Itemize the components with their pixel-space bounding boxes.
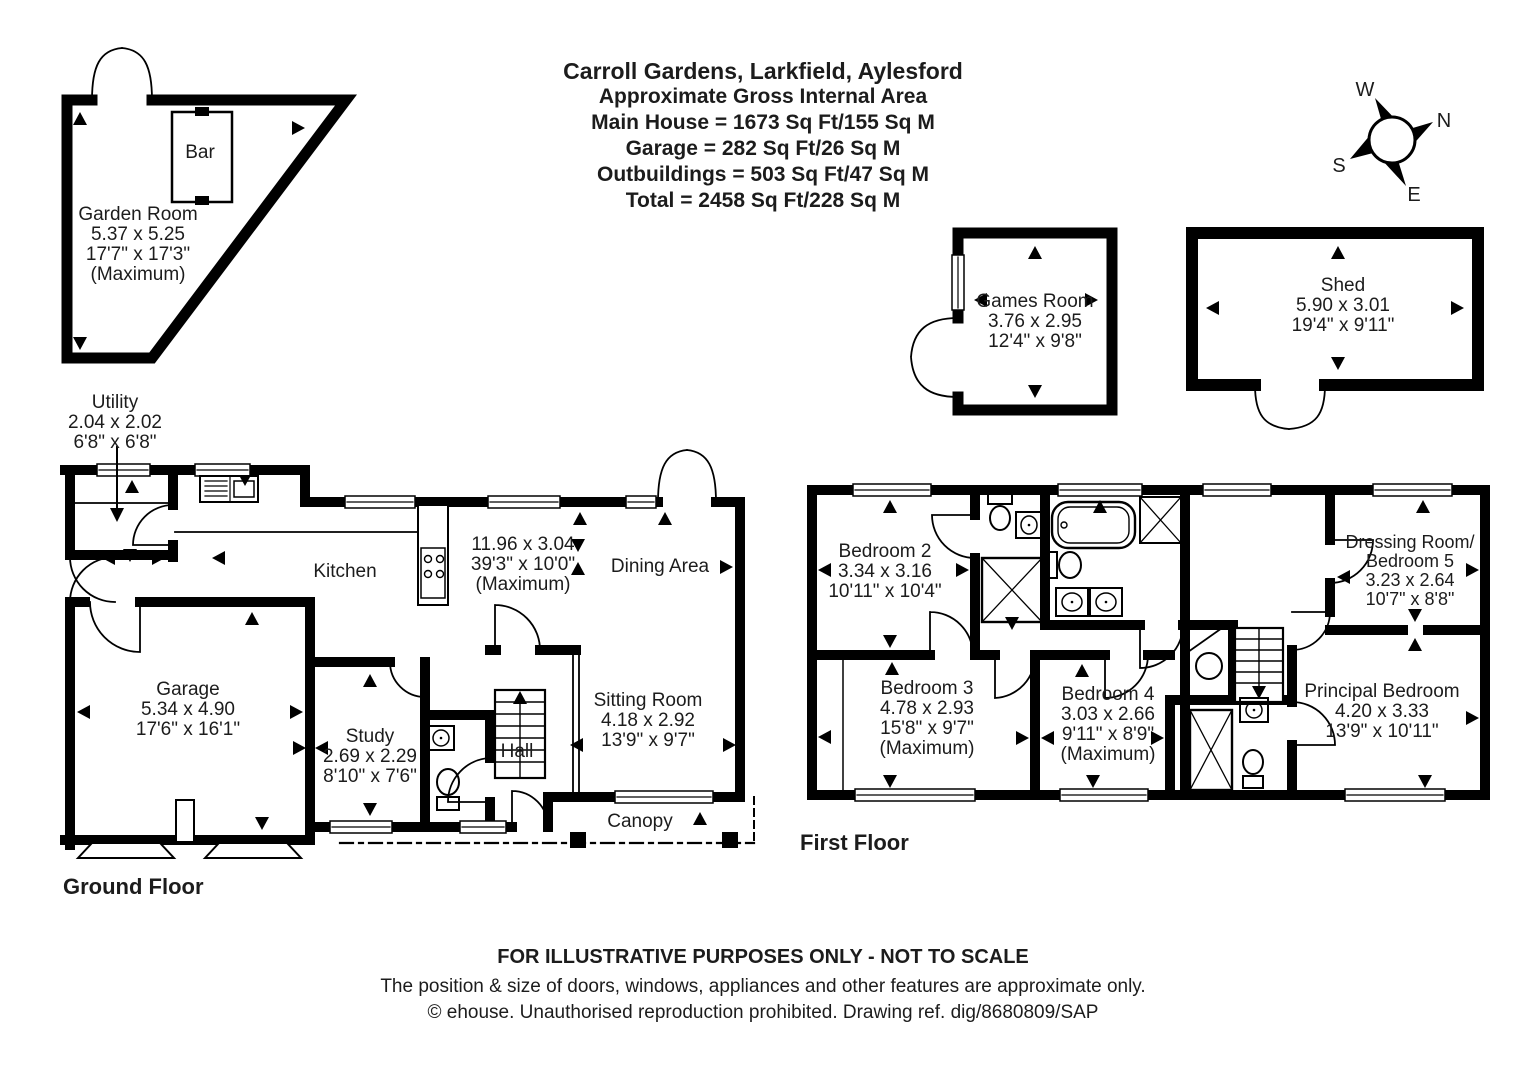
room-dim-m: 3.03 x 2.66 [1061, 705, 1156, 725]
room-dim-ft: 13'9" x 10'11" [1304, 722, 1459, 742]
ensuite1-fixtures [982, 494, 1042, 622]
garage-doors [78, 800, 301, 858]
room-note: (Maximum) [471, 575, 575, 595]
room-dim-ft: 10'11" x 10'4" [828, 582, 941, 602]
area-subtitle: Approximate Gross Internal Area [563, 84, 963, 110]
footer-copyright: © ehouse. Unauthorised reproduction proh… [428, 1002, 1099, 1024]
room-dim-m: 5.37 x 5.25 [78, 225, 197, 245]
dressing-room-label: Dressing Room/ Bedroom 5 3.23 x 2.64 10'… [1345, 533, 1474, 609]
room-dim-ft: 13'9" x 9'7" [594, 731, 703, 751]
address-title: Carroll Gardens, Larkfield, Aylesford [563, 58, 963, 84]
room-name: Bedroom 4 [1061, 685, 1156, 705]
room-dim-ft: 15'8" x 9'7" [880, 719, 975, 739]
room-dim-ft: 9'11" x 8'9" [1061, 725, 1156, 745]
garden-room-plan [67, 48, 346, 358]
room-dim-ft: 10'7" x 8'8" [1345, 590, 1474, 609]
room-name: Games Room [976, 292, 1093, 312]
room-note: (Maximum) [78, 265, 197, 285]
room-name-line1: Dressing Room/ [1345, 533, 1474, 552]
room-name: Sitting Room [594, 691, 703, 711]
window [952, 255, 964, 310]
total-area: Total = 2458 Sq Ft/228 Sq M [563, 188, 963, 214]
room-name: Kitchen [313, 562, 376, 582]
utility-pointer-arrow [110, 447, 124, 522]
hob-icon [418, 505, 448, 605]
floorplan-page: W N S E [0, 0, 1528, 1080]
compass-south: S [1332, 155, 1345, 177]
ground-floor-title: Ground Floor [63, 874, 204, 900]
principal-bedroom-label: Principal Bedroom 4.20 x 3.33 13'9" x 10… [1304, 682, 1459, 742]
first-floor-title: First Floor [800, 830, 909, 856]
room-name: Canopy [607, 812, 673, 832]
room-name: Hall [501, 742, 534, 762]
room-name: Dining Area [611, 557, 709, 577]
room-name: Bar [185, 143, 215, 163]
bedroom4-label: Bedroom 4 3.03 x 2.66 9'11" x 8'9" (Maxi… [1061, 685, 1156, 765]
title-block: Carroll Gardens, Larkfield, Aylesford Ap… [563, 58, 963, 214]
ground-floor-plan [65, 447, 754, 858]
room-dim-m: 3.34 x 3.16 [828, 562, 941, 582]
room-dim-m: 5.34 x 4.90 [136, 700, 240, 720]
room-dim-ft: 12'4" x 9'8" [976, 332, 1093, 352]
room-name-line2: Bedroom 5 [1345, 552, 1474, 571]
room-dim-m: 4.20 x 3.33 [1304, 702, 1459, 722]
study-label: Study 2.69 x 2.29 8'10" x 7'6" [323, 727, 417, 787]
room-name: Principal Bedroom [1304, 682, 1459, 702]
room-dim-m: 5.90 x 3.01 [1292, 296, 1395, 316]
cupboard-tank-icon [1196, 653, 1222, 679]
bathroom-fixtures [1048, 497, 1181, 616]
bedroom3-label: Bedroom 3 4.78 x 2.93 15'8" x 9'7" (Maxi… [880, 679, 975, 759]
staircase [495, 690, 545, 778]
room-name: Garden Room [78, 205, 197, 225]
room-note: (Maximum) [1061, 745, 1156, 765]
room-dim-ft: 8'10" x 7'6" [323, 767, 417, 787]
sitting-room-label: Sitting Room 4.18 x 2.92 13'9" x 9'7" [594, 691, 703, 751]
hall-label: Hall [501, 742, 534, 762]
room-dim-ft: 19'4" x 9'11" [1292, 316, 1395, 336]
wc-basin-icon [428, 726, 454, 750]
staircase [1235, 628, 1283, 702]
compass-west: W [1356, 79, 1375, 101]
garden-room-label: Garden Room 5.37 x 5.25 17'7" x 17'3" (M… [78, 205, 197, 285]
room-dim-ft: 17'7" x 17'3" [78, 245, 197, 265]
games-room-label: Games Room 3.76 x 2.95 12'4" x 9'8" [976, 292, 1093, 352]
garage-label: Garage 5.34 x 4.90 17'6" x 16'1" [136, 680, 240, 740]
walls [65, 470, 740, 845]
room-name: Bedroom 2 [828, 542, 941, 562]
ensuite2-fixtures [1190, 698, 1268, 790]
room-dim-m: 11.96 x 3.04 [471, 535, 575, 555]
room-dim-m: 4.18 x 2.92 [594, 711, 703, 731]
room-dim-ft: 17'6" x 16'1" [136, 720, 240, 740]
dining-area-label: Dining Area [611, 557, 709, 577]
room-dim-m: 3.23 x 2.64 [1345, 571, 1474, 590]
kitchen-label: Kitchen [313, 562, 376, 582]
room-dim-m: 2.69 x 2.29 [323, 747, 417, 767]
footer-note: The position & size of doors, windows, a… [380, 976, 1145, 998]
room-note: (Maximum) [880, 739, 975, 759]
outbuildings-area: Outbuildings = 503 Sq Ft/47 Sq M [563, 162, 963, 188]
main-house-area: Main House = 1673 Sq Ft/155 Sq M [563, 110, 963, 136]
compass-rose: W N S E [1332, 79, 1451, 206]
room-name: Garage [136, 680, 240, 700]
utility-label: Utility 2.04 x 2.02 6'8" x 6'8" [68, 393, 162, 453]
garage-area: Garage = 282 Sq Ft/26 Sq M [563, 136, 963, 162]
room-name: Study [323, 727, 417, 747]
canopy-label: Canopy [607, 812, 673, 832]
room-dim-ft: 6'8" x 6'8" [68, 433, 162, 453]
room-dim-ft: 39'3" x 10'0" [471, 555, 575, 575]
shed-label: Shed 5.90 x 3.01 19'4" x 9'11" [1292, 276, 1395, 336]
room-name: Shed [1292, 276, 1395, 296]
room-dim-m: 3.76 x 2.95 [976, 312, 1093, 332]
wc-toilet-icon [437, 769, 459, 810]
room-name: Utility [68, 393, 162, 413]
room-dim-m: 2.04 x 2.02 [68, 413, 162, 433]
kitchen-sink-unit [200, 476, 258, 502]
room-name: Bedroom 3 [880, 679, 975, 699]
bar-label: Bar [185, 143, 215, 163]
compass-north: N [1437, 110, 1451, 132]
bedroom2-label: Bedroom 2 3.34 x 3.16 10'11" x 10'4" [828, 542, 941, 602]
compass-east: E [1407, 184, 1420, 206]
footer-disclaimer: FOR ILLUSTRATIVE PURPOSES ONLY - NOT TO … [497, 946, 1029, 969]
kitchen-dining-dims-label: 11.96 x 3.04 39'3" x 10'0" (Maximum) [471, 535, 575, 595]
room-dim-m: 4.78 x 2.93 [880, 699, 975, 719]
